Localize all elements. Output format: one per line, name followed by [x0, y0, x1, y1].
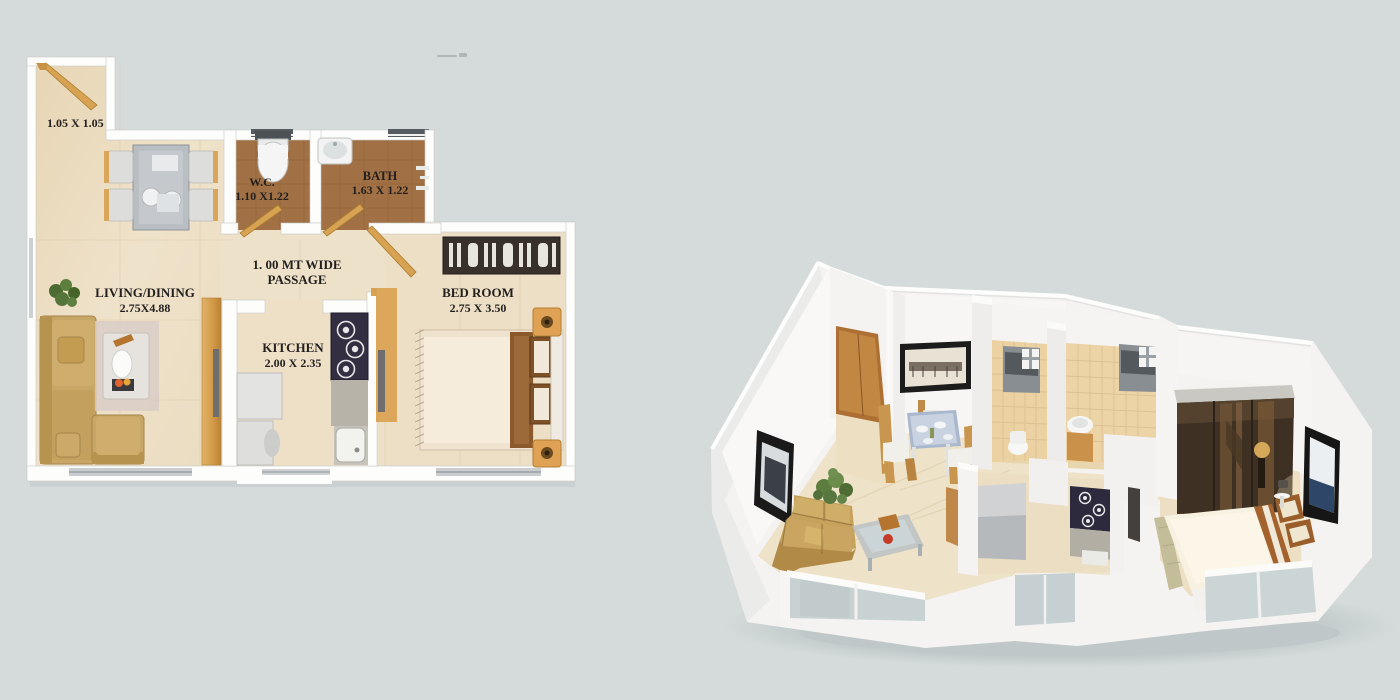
svg-text:2.00 X 2.35: 2.00 X 2.35 — [265, 356, 322, 370]
svg-text:1.10 X1.22: 1.10 X1.22 — [235, 189, 289, 203]
svg-text:1. 00 MT WIDE: 1. 00 MT WIDE — [252, 257, 341, 272]
svg-text:1.63 X 1.22: 1.63 X 1.22 — [352, 183, 409, 197]
svg-text:2.75 X 3.50: 2.75 X 3.50 — [450, 301, 507, 315]
svg-text:LIVING/DINING: LIVING/DINING — [95, 285, 195, 300]
svg-text:W.C.: W.C. — [249, 175, 275, 189]
svg-text:2.75X4.88: 2.75X4.88 — [120, 301, 171, 315]
svg-text:KITCHEN: KITCHEN — [262, 340, 324, 355]
svg-text:PASSAGE: PASSAGE — [268, 272, 327, 287]
svg-text:1.05 X 1.05: 1.05 X 1.05 — [47, 116, 104, 130]
svg-text:BATH: BATH — [363, 169, 398, 183]
svg-text:BED ROOM: BED ROOM — [442, 285, 514, 300]
